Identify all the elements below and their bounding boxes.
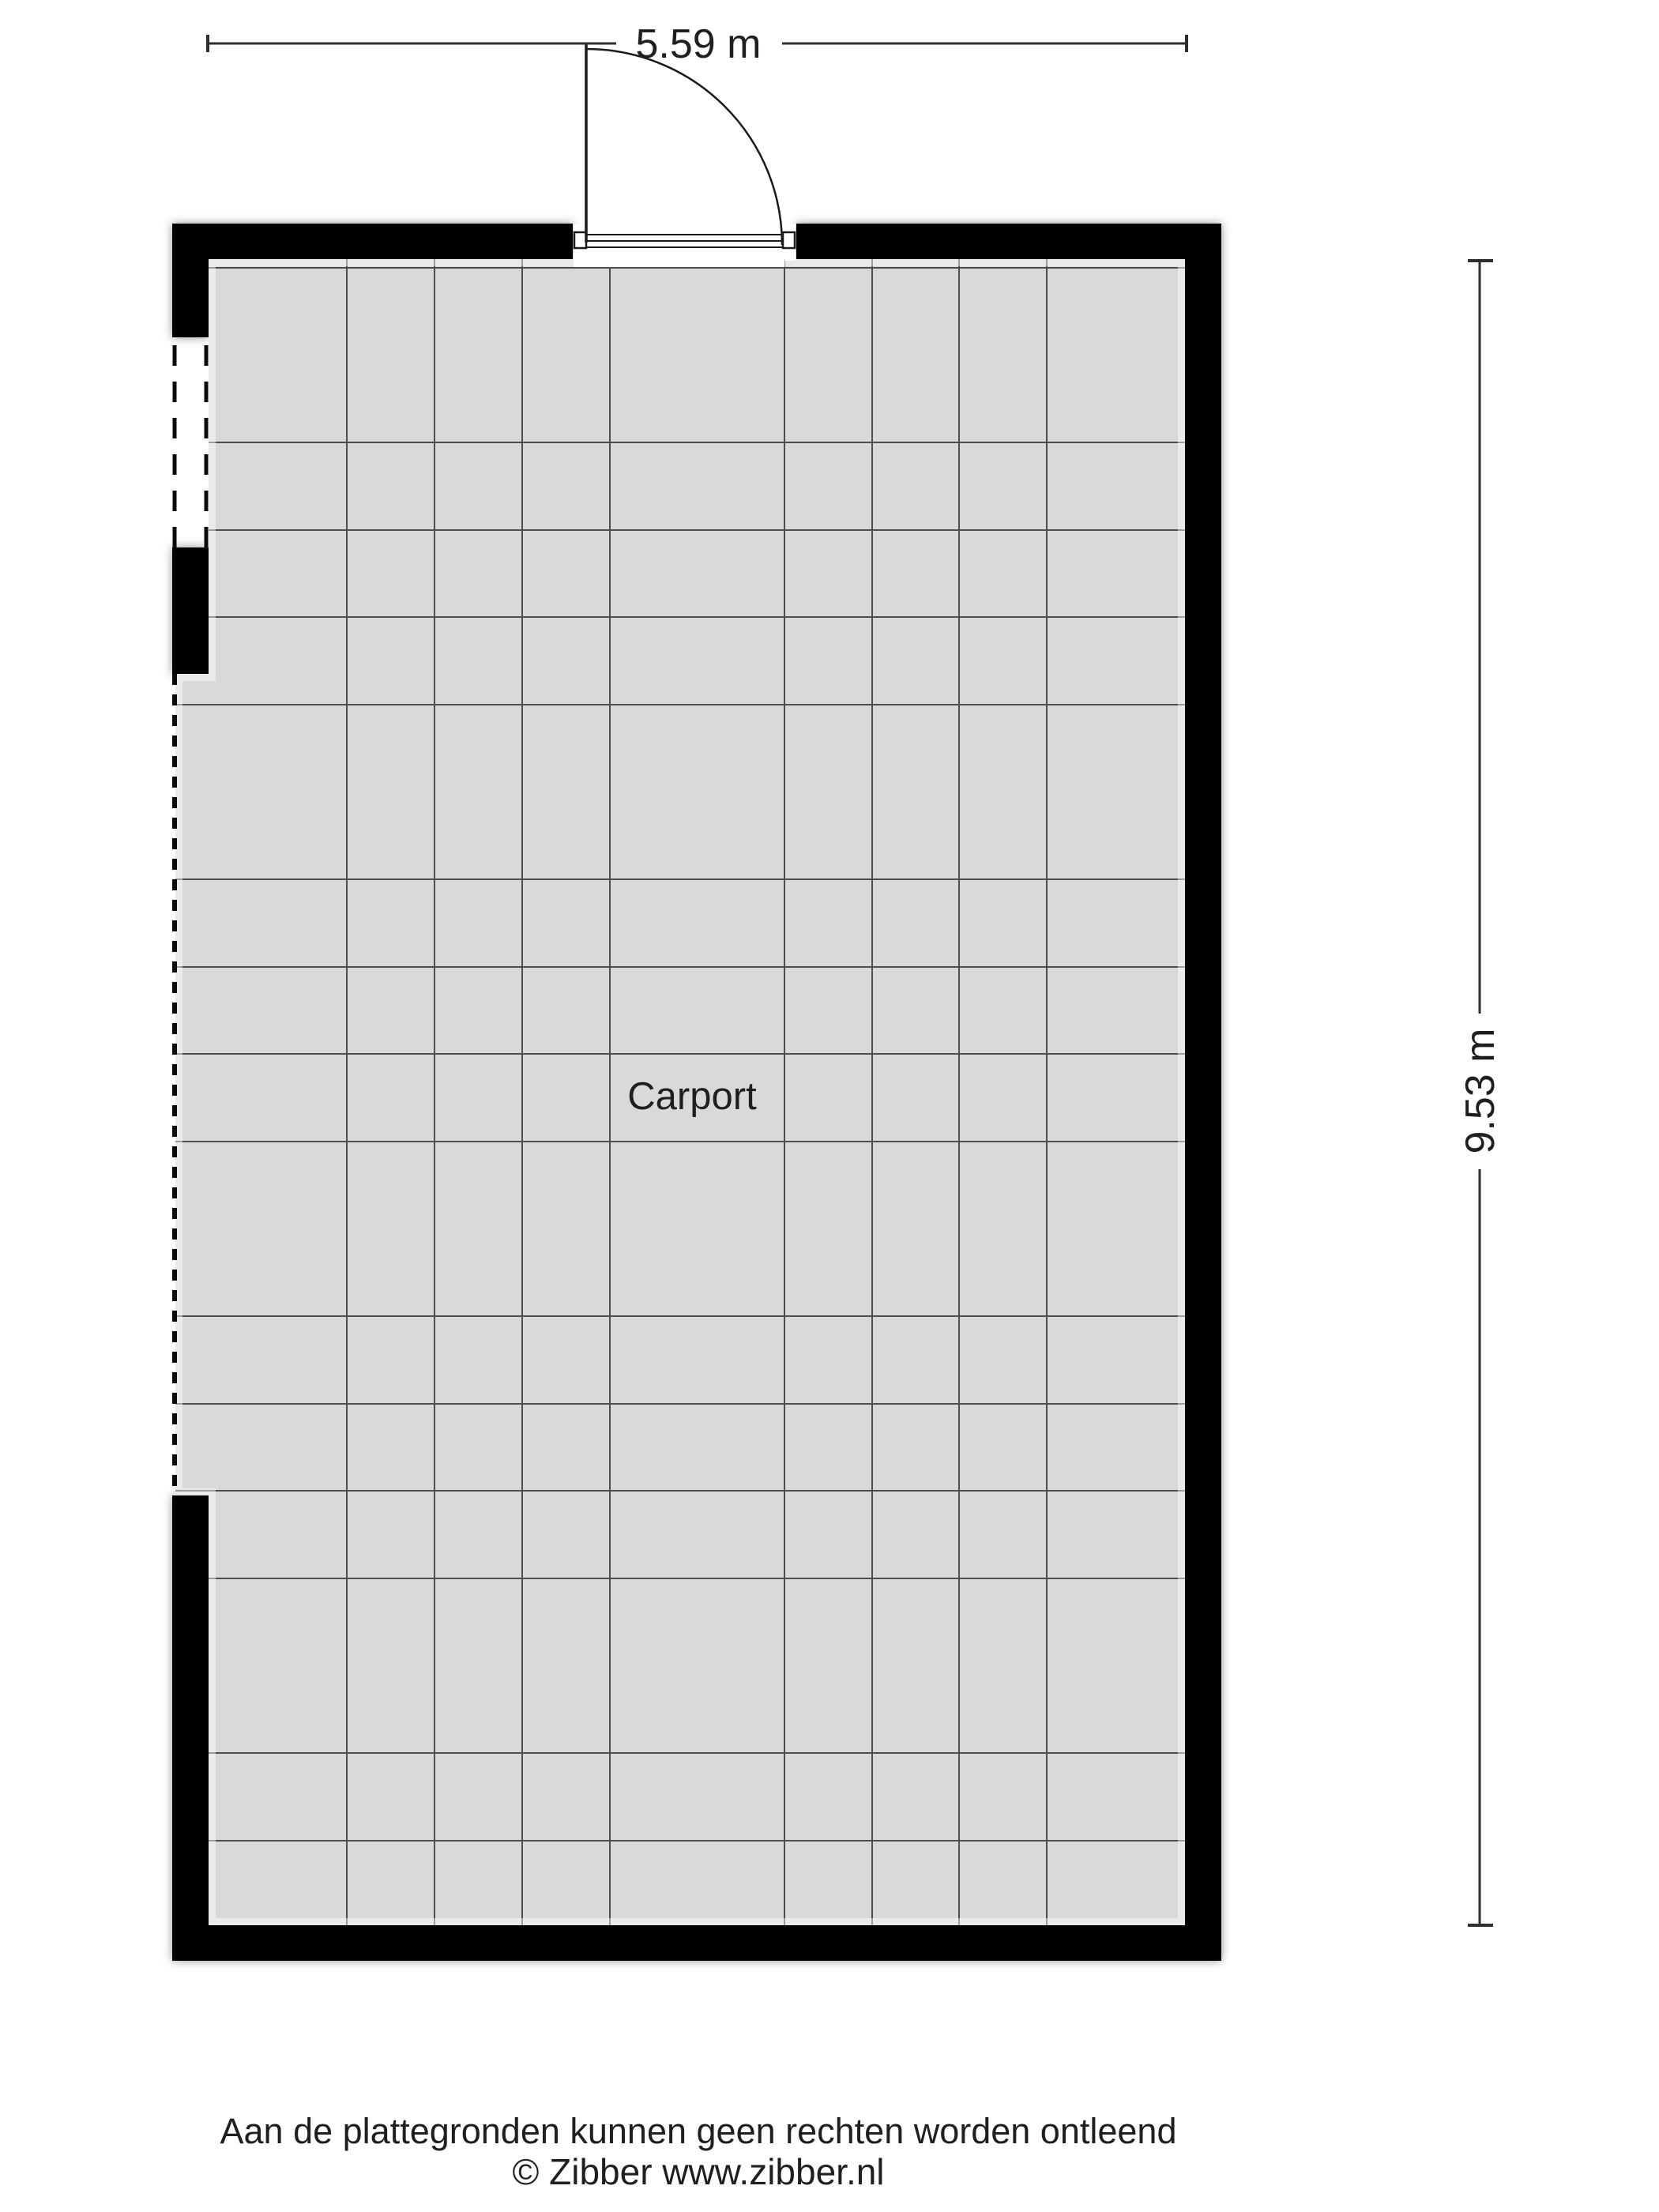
width-dimension-label: 5.59 m <box>636 21 762 67</box>
footer-copyright: © Zibber www.zibber.nl <box>512 2151 884 2192</box>
door-opening <box>574 224 796 261</box>
door-jamb-right <box>783 232 795 248</box>
door <box>574 43 796 267</box>
door-sill-extension <box>574 260 784 267</box>
door-jamb-left <box>574 232 586 248</box>
room-label: Carport <box>627 1075 757 1118</box>
door-swing-arc <box>586 49 782 245</box>
height-dimension-label: 9.53 m <box>1458 1029 1503 1154</box>
left-window-opening <box>175 337 206 547</box>
floorplan-canvas: 5.59 m 9.53 m Carport Aan de plattegrond… <box>0 0 1659 2212</box>
footer-disclaimer: Aan de plattegronden kunnen geen rechten… <box>220 2111 1177 2151</box>
